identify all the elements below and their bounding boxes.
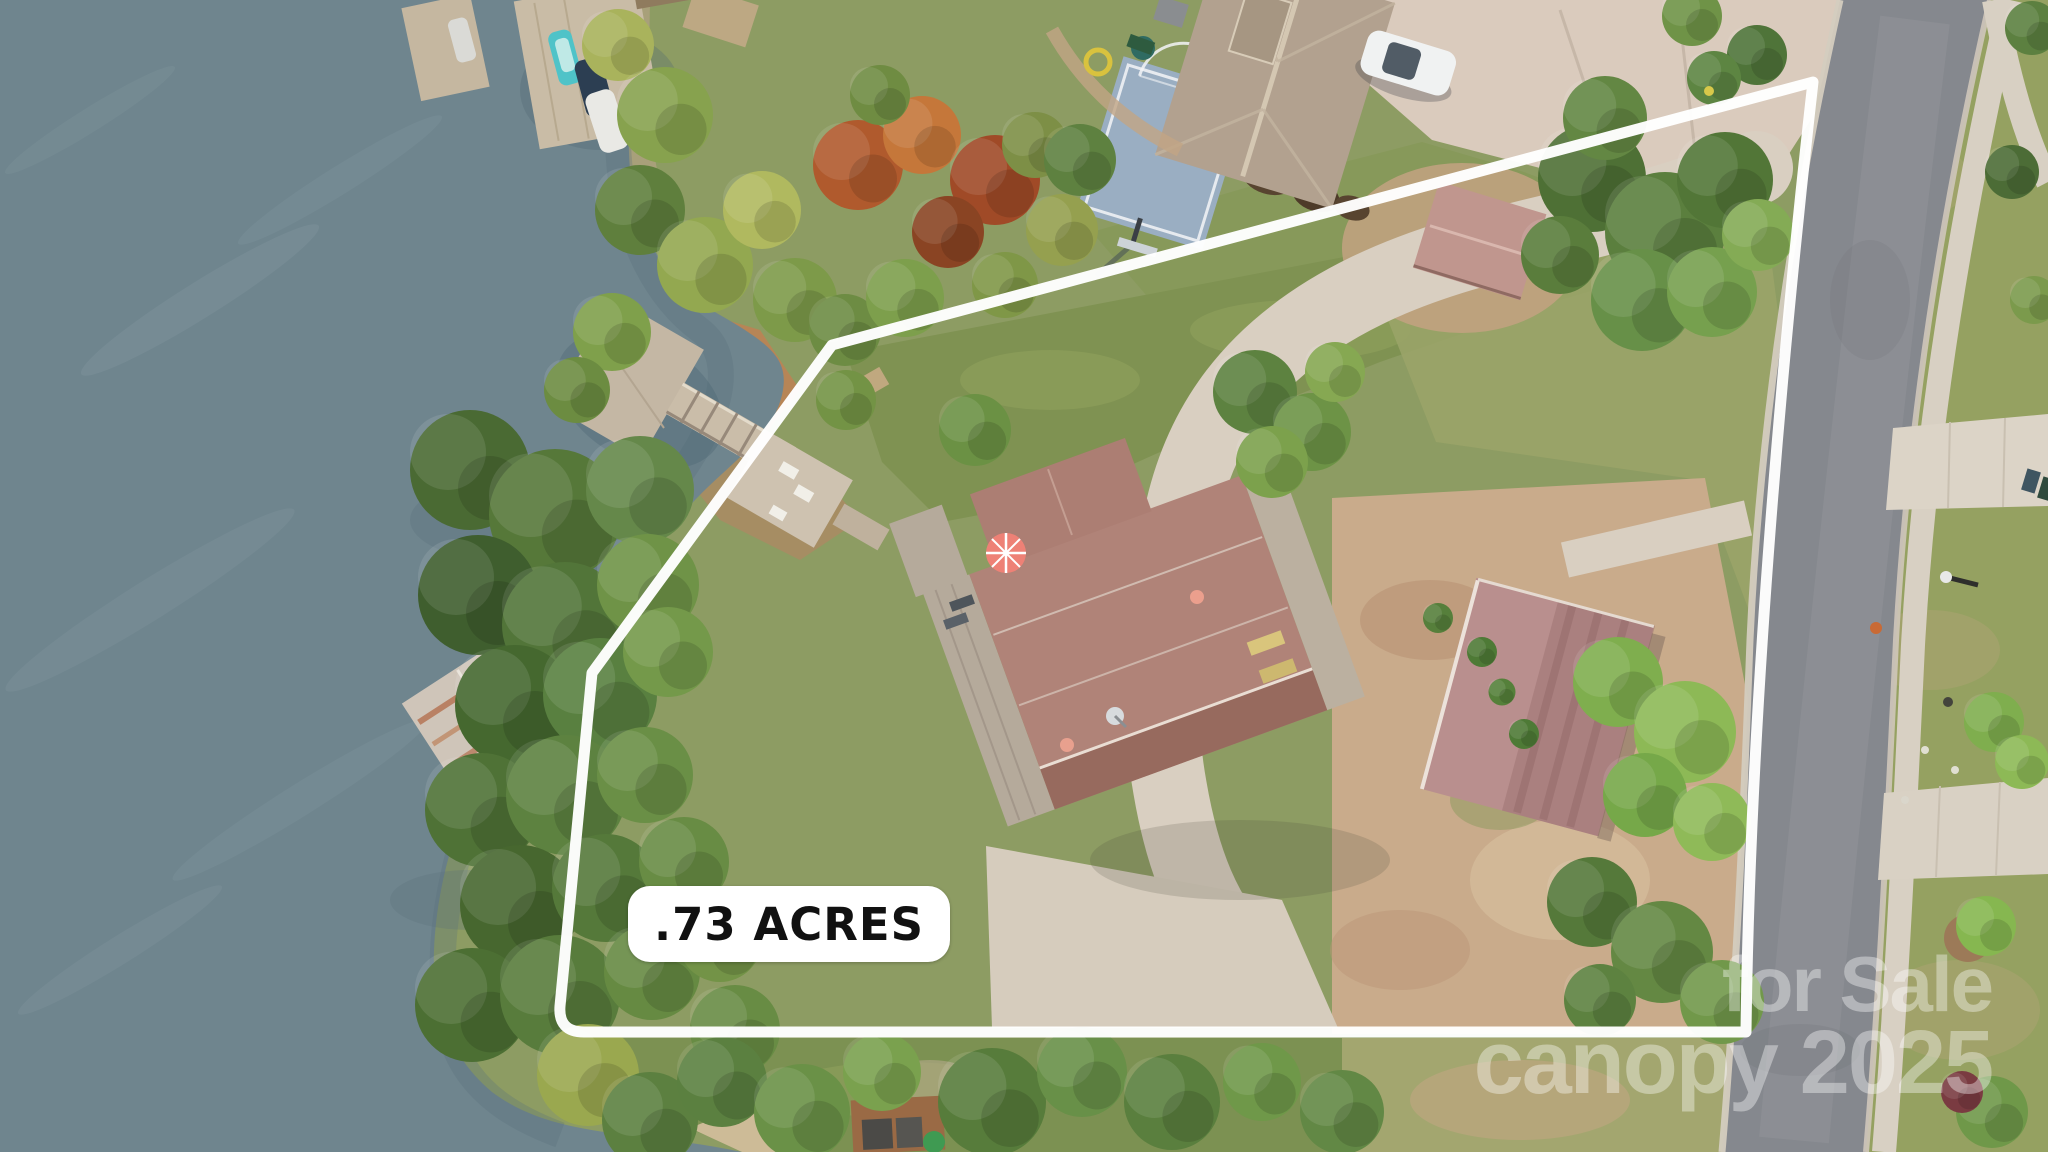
watermark-line1: for Sale <box>1474 948 1992 1021</box>
patio-umbrella <box>986 533 1026 573</box>
acreage-label: .73 ACRES <box>628 886 950 962</box>
house-shadow <box>1090 820 1390 900</box>
skylight <box>1190 590 1204 604</box>
watermark-line2: canopy 2025 <box>1474 1021 1992 1106</box>
green-barrel <box>923 1131 945 1152</box>
fire-hydrant <box>1870 622 1882 634</box>
aerial-photo: .73 ACRES for Sale canopy 2025 <box>0 0 2048 1152</box>
watermark: for Sale canopy 2025 <box>1474 948 1992 1106</box>
skylight <box>1060 738 1074 752</box>
driveway-apron-1 <box>1886 414 2048 510</box>
driveway-apron-2 <box>1878 778 2048 880</box>
